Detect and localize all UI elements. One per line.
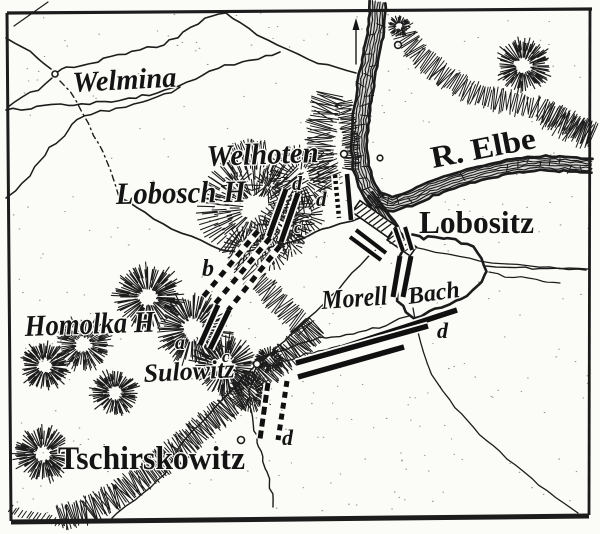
svg-text:a: a bbox=[175, 332, 186, 354]
svg-text:d: d bbox=[437, 318, 449, 343]
svg-text:c: c bbox=[294, 218, 302, 237]
svg-text:Homolka H: Homolka H bbox=[23, 305, 156, 343]
svg-text:Welmina: Welmina bbox=[72, 62, 178, 99]
svg-text:Lobosch H: Lobosch H bbox=[115, 174, 247, 211]
svg-text:Morell: Morell bbox=[319, 280, 388, 315]
svg-text:d: d bbox=[282, 425, 294, 450]
svg-text:d: d bbox=[292, 173, 303, 195]
svg-text:Lobositz: Lobositz bbox=[419, 204, 534, 240]
svg-text:b: b bbox=[202, 256, 215, 282]
svg-text:Welhoten: Welhoten bbox=[206, 136, 319, 173]
svg-text:Tschirskowitz: Tschirskowitz bbox=[58, 441, 245, 477]
svg-text:c: c bbox=[222, 347, 230, 366]
svg-text:d: d bbox=[316, 187, 327, 211]
